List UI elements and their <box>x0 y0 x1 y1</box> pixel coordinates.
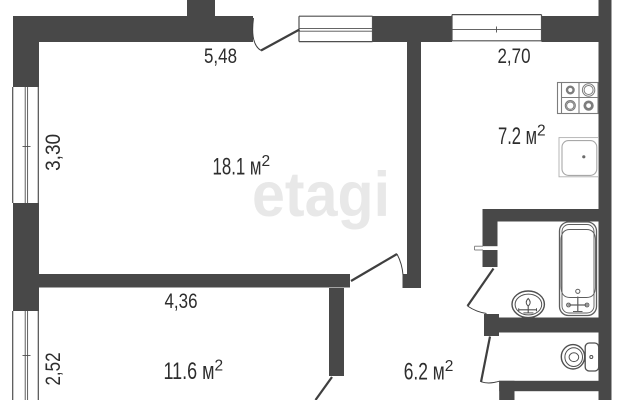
svg-text:18.1 м2: 18.1 м2 <box>213 153 271 180</box>
svg-text:etagi: etagi <box>252 160 390 230</box>
svg-text:4,36: 4,36 <box>165 290 198 313</box>
svg-text:2,52: 2,52 <box>42 353 65 386</box>
svg-text:5,48: 5,48 <box>204 45 237 68</box>
svg-text:3,30: 3,30 <box>42 134 65 171</box>
svg-text:2,70: 2,70 <box>498 45 531 68</box>
svg-text:11.6 м2: 11.6 м2 <box>164 358 224 385</box>
